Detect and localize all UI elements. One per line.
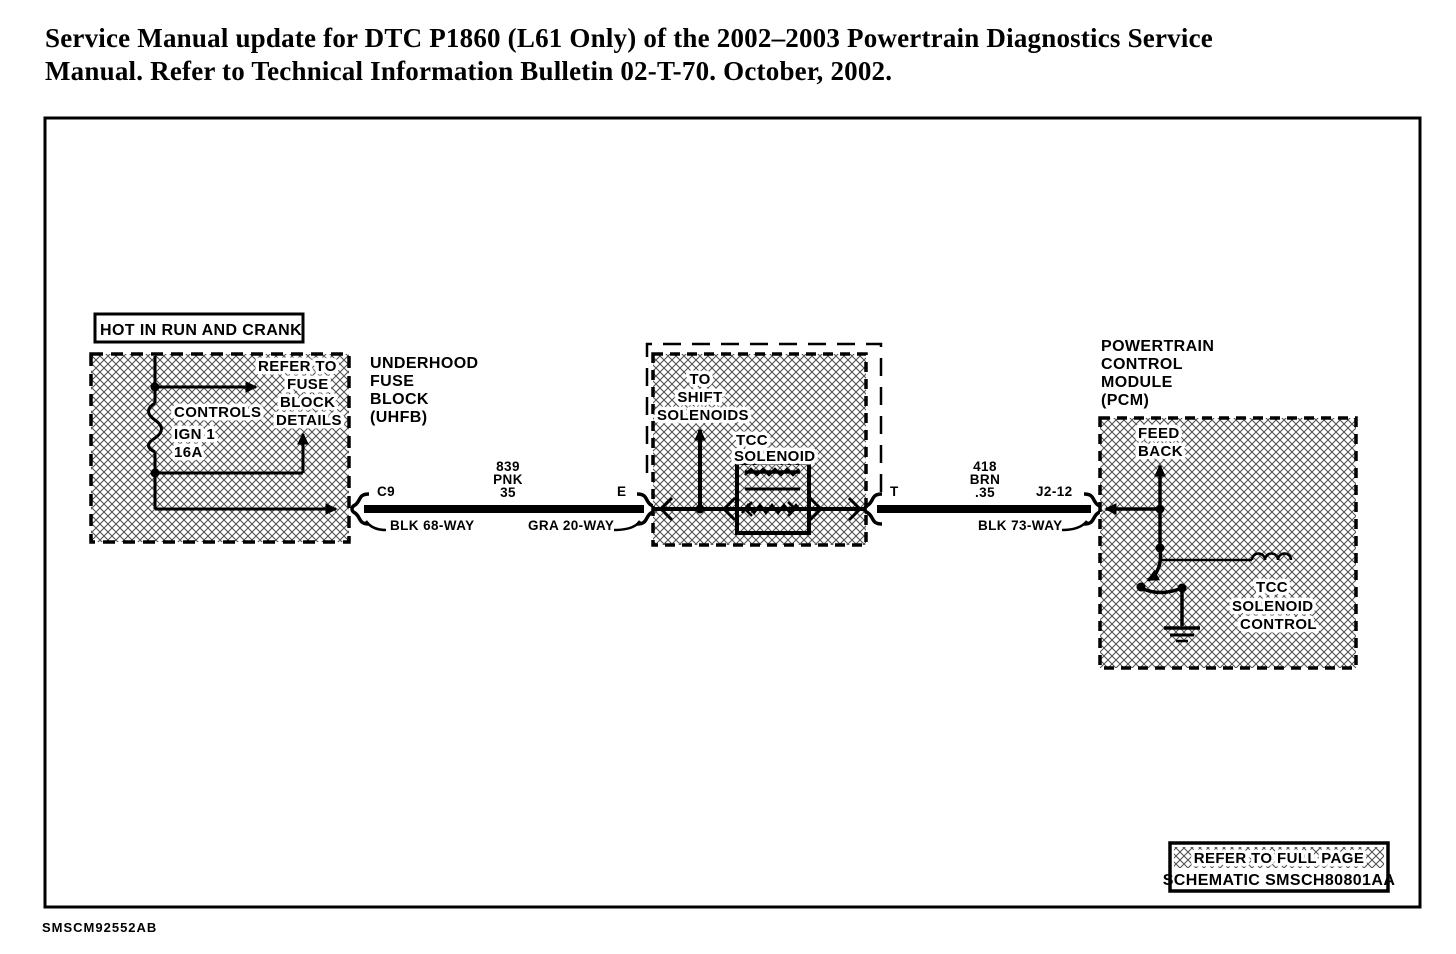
uhfb-name-line: BLOCK <box>370 391 429 408</box>
pcm-name-line: CONTROL <box>1101 356 1183 373</box>
transmission-section: TO SHIFT SOLENOIDS TCC SOLENOID <box>647 344 881 545</box>
leader-line <box>614 521 640 530</box>
junction-dot <box>1178 584 1187 593</box>
uhfb-name-line: UNDERHOOD <box>370 355 479 372</box>
shift-label-line: SHIFT <box>677 389 722 406</box>
shift-label-line: SOLENOIDS <box>657 407 749 424</box>
tcc-control-label-line: TCC <box>1256 579 1288 596</box>
refer-line-2: SCHEMATIC SMSCH80801AA <box>1163 872 1396 889</box>
refer-line-1: REFER TO FULL PAGE <box>1194 850 1365 867</box>
junction-dot <box>1156 544 1165 553</box>
feedback-line: FEED <box>1138 425 1180 442</box>
pcm-section: POWERTRAIN CONTROL MODULE (PCM) <box>1100 338 1356 668</box>
wire-size: .35 <box>975 485 995 500</box>
document-id: SMSCM92552AB <box>42 920 157 935</box>
uhfb-note-line: REFER TO <box>258 358 337 375</box>
scanned-page: Service Manual update for DTC P1860 (L61… <box>0 0 1456 954</box>
wire-839-section: C9 E 839 PNK 35 BLK 68-WAY GRA 20-WAY <box>352 459 654 533</box>
feedback-line: BACK <box>1138 443 1183 460</box>
tcc-control-label-line: SOLENOID <box>1232 598 1314 615</box>
tcc-control-label-line: CONTROL <box>1240 616 1317 633</box>
tcc-label-line: SOLENOID <box>734 448 816 465</box>
junction-dot <box>1156 505 1165 514</box>
uhfb-note-line: DETAILS <box>276 412 342 429</box>
junction-dot <box>696 505 705 514</box>
pcm-name-line: (PCM) <box>1101 392 1149 409</box>
pin-label-j2-12: J2-12 <box>1036 484 1073 499</box>
uhfb-note-line: FUSE <box>287 376 329 393</box>
pin-label-e: E <box>617 484 626 499</box>
pcm-name-line: MODULE <box>1101 374 1173 391</box>
junction-dot <box>1137 583 1146 592</box>
pin-label-t: T <box>890 484 899 499</box>
wire-size: 35 <box>500 485 516 500</box>
wire-418-section: T J2-12 418 BRN .35 BLK 73-WAY <box>865 459 1101 533</box>
uhfb-controls-label: CONTROLS <box>174 404 261 421</box>
uhfb-name-line: FUSE <box>370 373 414 390</box>
leader-line <box>1062 521 1087 530</box>
connector-label: BLK 73-WAY <box>978 518 1063 533</box>
pcm-name-line: POWERTRAIN <box>1101 338 1214 355</box>
junction-dot <box>151 383 160 392</box>
shift-label-line: TO <box>689 371 710 388</box>
tcc-label-line: TCC <box>736 432 768 449</box>
connector-label: BLK 68-WAY <box>390 518 475 533</box>
connector-label: GRA 20-WAY <box>528 518 614 533</box>
uhfb-note-line: BLOCK <box>280 394 335 411</box>
pin-label-c9: C9 <box>377 484 395 499</box>
uhfb-fuse-name: IGN 1 <box>174 426 215 443</box>
junction-dot <box>151 469 160 478</box>
hot-in-run-label: HOT IN RUN AND CRANK <box>100 322 302 339</box>
refer-box: REFER TO FULL PAGE SCHEMATIC SMSCH80801A… <box>1163 843 1396 891</box>
uhfb-name-line: (UHFB) <box>370 409 428 426</box>
wiring-diagram-svg: HOT IN RUN AND CRANK REFER TO FUSE BLOCK… <box>0 0 1456 954</box>
uhfb-fuse-rating: 16A <box>174 444 203 461</box>
